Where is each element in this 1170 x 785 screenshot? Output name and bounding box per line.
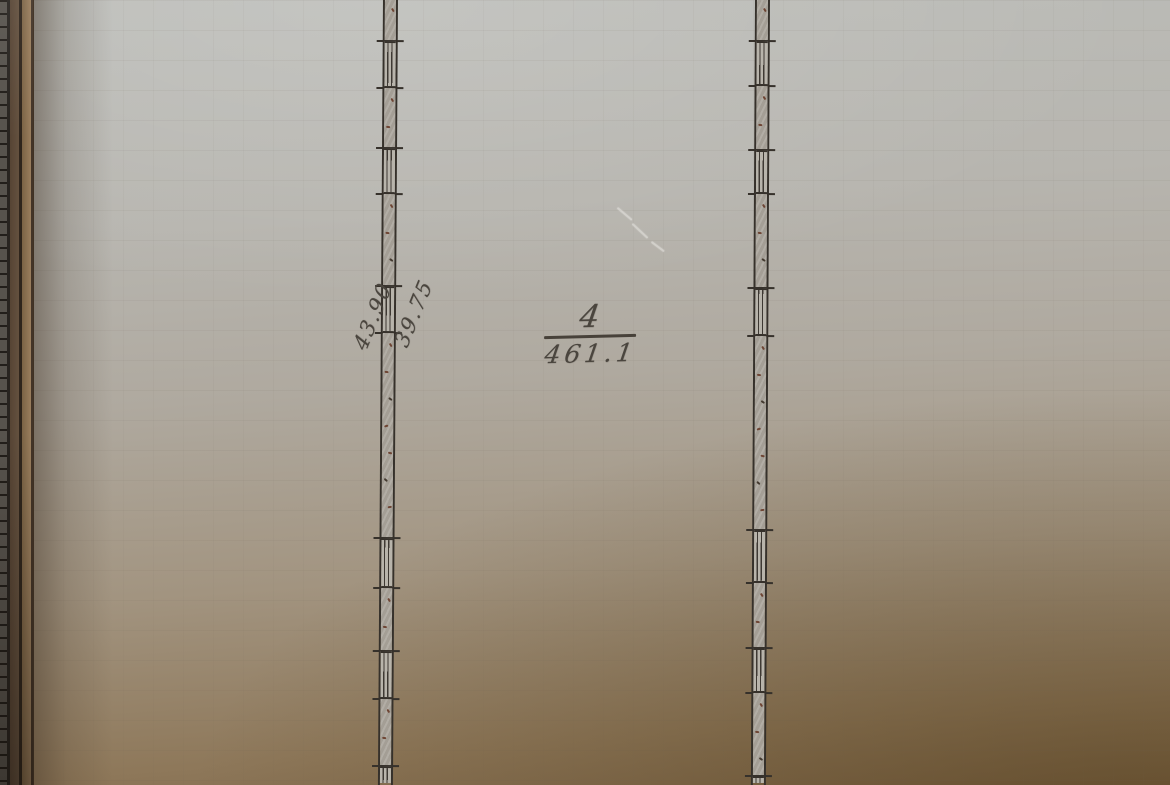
wall-segment [383, 194, 395, 286]
hatch-speck [384, 478, 388, 482]
hatch-speck [384, 371, 388, 373]
hatch-speck [388, 397, 392, 401]
hatch-speck [390, 204, 394, 208]
hatch-speck [761, 346, 765, 350]
squared-paper-grid [33, 0, 1170, 785]
hatch-speck [757, 428, 761, 431]
room-number-area-fraction: 4 461.1 [539, 299, 641, 368]
window-segment [754, 530, 765, 583]
page-edge-shadow [33, 0, 113, 785]
wall-segment [753, 693, 764, 776]
wall-segment [754, 336, 766, 530]
hatch-speck [760, 509, 764, 511]
hatch-speck [759, 703, 763, 707]
room-area: 461.1 [539, 338, 643, 368]
wall-segment [754, 583, 765, 648]
wall-segment [380, 699, 391, 766]
hatch-speck [382, 737, 386, 739]
left-wall [378, 0, 398, 785]
wall-segment [381, 588, 392, 651]
hatch-speck [758, 124, 762, 126]
crease-segment [617, 207, 633, 220]
crease-segment [651, 241, 665, 252]
crease-segment [632, 223, 648, 238]
hatch-speck [387, 709, 391, 713]
hatch-speck [383, 626, 387, 628]
edge-lighting-overlay [0, 0, 34, 785]
hatch-speck [760, 455, 764, 458]
room-number: 4 [537, 299, 642, 336]
window-segment [380, 766, 391, 783]
dimension-label-inner: 39.75 [390, 279, 436, 352]
right-wall [751, 0, 770, 785]
hatch-speck [762, 204, 766, 208]
window-segment [757, 41, 768, 86]
hatch-speck [761, 258, 765, 262]
wall-segment [385, 0, 396, 41]
hatch-speck [758, 232, 762, 234]
hatch-speck [757, 374, 761, 376]
hatch-speck [759, 757, 763, 761]
hatch-speck [760, 593, 764, 597]
hatch-speck [388, 452, 392, 455]
wall-segment [382, 333, 394, 538]
hatch-speck [756, 621, 760, 623]
hatch-speck [761, 400, 765, 404]
wall-segment [756, 86, 767, 150]
hatch-speck [385, 232, 389, 234]
scanned-plan-photo: 43.90 39.75 4 461.1 [0, 0, 1170, 785]
window-segment [753, 648, 764, 693]
hatch-speck [388, 506, 392, 508]
wall-segment [384, 88, 395, 148]
window-segment [756, 150, 767, 194]
window-segment [380, 651, 391, 699]
hatch-speck [755, 731, 759, 733]
hatch-speck [389, 258, 393, 262]
window-segment [384, 148, 395, 194]
window-segment [753, 776, 764, 783]
window-segment [384, 41, 395, 88]
hatch-speck [386, 126, 390, 128]
hatch-speck [391, 98, 395, 102]
hatch-speck [756, 481, 760, 485]
wall-segment [757, 0, 768, 41]
hatch-speck [763, 8, 767, 12]
hatch-speck [387, 598, 391, 602]
hatch-speck [384, 425, 388, 428]
window-segment [381, 538, 392, 588]
window-segment [755, 288, 766, 336]
hatch-speck [389, 343, 393, 347]
hatch-speck [391, 8, 395, 12]
hatch-speck [763, 96, 767, 100]
wall-segment [755, 194, 766, 288]
